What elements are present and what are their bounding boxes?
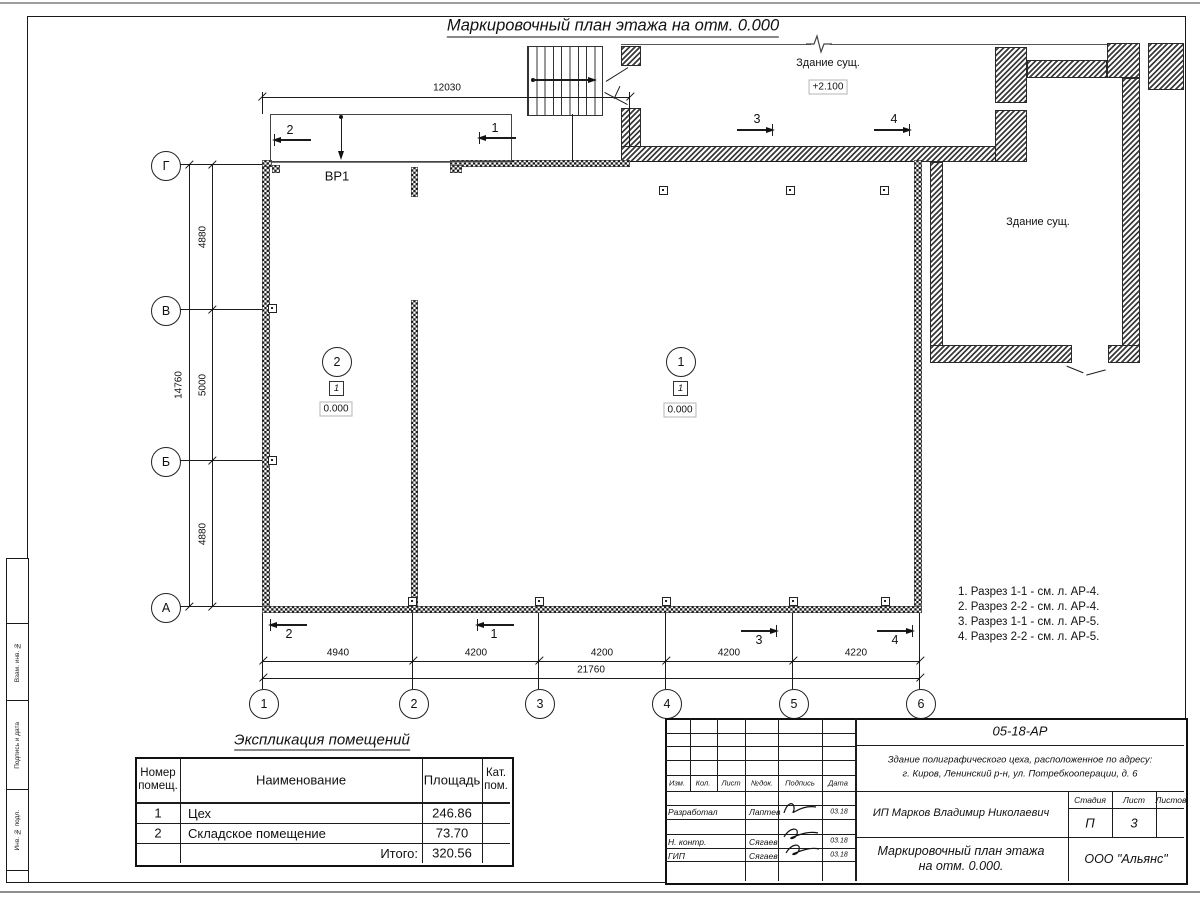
col-header-cat: Кат. пом. [483, 767, 510, 793]
explication-title: Экспликация помещений [234, 732, 410, 751]
wall-bottom [262, 606, 922, 613]
role-gip: ГИП [668, 851, 685, 861]
column-mark [268, 304, 277, 313]
column-mark [786, 186, 795, 195]
role-developer: Разработал [668, 807, 718, 817]
tb-grid [690, 718, 691, 791]
tb-grid [745, 718, 746, 881]
dim-value: 4220 [845, 648, 867, 659]
axis-badge: 2 [399, 689, 429, 719]
axis-label: 4 [664, 697, 671, 711]
note-line: 3. Разрез 1-1 - см. л. АР-5. [958, 616, 1099, 628]
section-mark-number: 4 [892, 633, 899, 647]
name-normcontrol: Сягаев [749, 837, 778, 847]
section-mark-bar [772, 124, 773, 136]
margin-stamp-label: Подпись и дата [14, 722, 21, 769]
partition-wall [411, 300, 418, 613]
tb-grid [665, 760, 855, 761]
tb-grid [665, 848, 855, 849]
axis-badge: 1 [249, 689, 279, 719]
axis-label: 5 [791, 697, 798, 711]
axis-label: 1 [261, 697, 268, 711]
dim-value: 4200 [465, 648, 487, 659]
date-normcontrol: 03.18 [830, 838, 848, 845]
margin-stamp-inv: Инв. № подл. [6, 789, 29, 872]
tb-grid [665, 733, 855, 734]
axis-label: Б [162, 455, 170, 469]
axis-line [179, 606, 262, 607]
room-type: 1 [678, 383, 683, 394]
tb-grid [1112, 791, 1113, 837]
existing-wall [621, 46, 641, 66]
tb-col-data: Дата [828, 779, 848, 788]
sheet-label: Лист [1123, 795, 1145, 805]
elevation-mark: 0.000 [319, 402, 352, 417]
room-number: 2 [334, 355, 341, 369]
client-name: ИП Марков Владимир Николаевич [873, 807, 1049, 819]
margin-stamp-empty2 [6, 870, 29, 883]
axis-label: Г [163, 159, 170, 173]
table-grid [135, 802, 510, 804]
axis-badge: 3 [525, 689, 555, 719]
tb-grid [665, 861, 855, 862]
tb-col-izm: Изм. [669, 779, 685, 788]
signature-developer [781, 800, 819, 816]
project-address-line2: г. Киров, Ленинский р-н, ул. Потребкоопе… [903, 769, 1138, 780]
tb-grid [1068, 791, 1069, 881]
drawing-title-line1: Маркировочный план этажа [878, 844, 1045, 858]
axis-line [179, 164, 262, 165]
existing-outline [830, 44, 1140, 45]
gate-jamb [450, 165, 462, 173]
axis-label: 2 [411, 697, 418, 711]
column-mark [881, 597, 890, 606]
wall-left [262, 160, 270, 613]
table-grid [180, 757, 181, 863]
tb-grid [1068, 808, 1184, 809]
axis-line [179, 460, 262, 461]
section-mark-number: 1 [492, 121, 499, 135]
dimension-line [263, 661, 920, 662]
tb-col-list: Лист [721, 779, 740, 788]
axis-badge: Г [151, 151, 181, 181]
section-mark-arrow [770, 628, 779, 634]
column-mark [659, 186, 668, 195]
section-mark-line [874, 129, 904, 130]
tb-grid [856, 745, 1184, 746]
dim-value: 4880 [198, 226, 209, 248]
sheet-edge-top [0, 2, 1200, 4]
drawing-title-line2: на отм. 0.000. [919, 859, 1004, 873]
axis-badge: 4 [652, 689, 682, 719]
table-grid [135, 843, 510, 844]
page-title: Маркировочный план этажа на отм. 0.000 [447, 17, 779, 38]
sheet-value: 3 [1130, 816, 1137, 831]
dimension-line [212, 165, 213, 607]
tb-grid [822, 718, 823, 881]
elevation-mark: +2.100 [809, 80, 848, 95]
drawing-sheet: { "sheet": { "title": "Маркировочный пла… [0, 0, 1200, 900]
stair-arrowhead [588, 77, 597, 83]
tb-grid [778, 718, 779, 881]
dim-value: 4200 [718, 648, 740, 659]
date-developer: 03.18 [830, 809, 848, 816]
dimension-line [189, 165, 190, 607]
table-grid [135, 823, 510, 824]
existing-wall [1027, 60, 1107, 78]
existing-wall [1108, 345, 1140, 363]
table-cell: 246.86 [432, 806, 472, 821]
table-cell: Складское помещение [188, 826, 326, 841]
margin-stamp-empty [6, 558, 29, 625]
section-mark-line [741, 630, 771, 631]
section-mark-number: 2 [287, 123, 294, 137]
name-developer: Лаптев [749, 807, 780, 817]
room-number-badge: 2 [322, 347, 352, 377]
axis-label: 6 [918, 697, 925, 711]
axis-label: А [162, 601, 170, 615]
table-total-value: 320.56 [432, 846, 472, 861]
existing-wall [1107, 43, 1140, 78]
column-mark [535, 597, 544, 606]
gate-jamb [272, 165, 280, 173]
note-line: 4. Разрез 2-2 - см. л. АР-5. [958, 631, 1099, 643]
section-mark-arrow [766, 127, 775, 133]
wall-tie-line [630, 161, 921, 163]
axis-badge: А [151, 593, 181, 623]
canopy-arrow [341, 118, 342, 152]
axis-label: 3 [537, 697, 544, 711]
stair-arrow [533, 79, 590, 80]
section-mark-bar [270, 619, 271, 631]
sheet-edge-bottom [0, 891, 1200, 893]
section-mark-arrow [906, 628, 915, 634]
tb-grid [665, 746, 855, 747]
dim-total: 21760 [577, 665, 605, 676]
tb-grid [665, 791, 855, 792]
existing-building-label: Здание сущ. [1006, 216, 1070, 228]
col-header-area: Площадь [424, 773, 481, 788]
tb-col-kol: Кол. [696, 779, 711, 788]
margin-stamp-label: Взам. инв. № [14, 642, 21, 682]
dim-value: 5000 [198, 374, 209, 396]
date-gip: 03.18 [830, 852, 848, 859]
column-mark [880, 186, 889, 195]
tb-grid [665, 834, 855, 835]
section-mark-line [281, 139, 311, 140]
existing-building-label: Здание сущ. [796, 57, 860, 69]
partition-stub [411, 167, 418, 197]
room-type: 1 [334, 383, 339, 394]
tb-grid [665, 819, 855, 820]
section-mark-line [484, 624, 514, 625]
sheets-label: Листов [1156, 795, 1187, 805]
stair-edge-line [572, 114, 573, 161]
dim-value: 4200 [591, 648, 613, 659]
company-name: ООО "Альянс" [1084, 852, 1167, 866]
existing-wall [1122, 78, 1140, 363]
section-mark-number: 3 [756, 633, 763, 647]
margin-stamp-label: Инв. № подл. [14, 810, 21, 851]
section-mark-bar [477, 619, 478, 631]
column-mark [268, 456, 277, 465]
tb-grid [665, 775, 855, 776]
section-mark-bar [274, 134, 275, 146]
section-mark-line [737, 129, 767, 130]
section-mark-number: 1 [491, 627, 498, 641]
axis-badge: Б [151, 447, 181, 477]
section-mark-line [486, 137, 516, 138]
column-mark [408, 597, 417, 606]
stage-label: Стадия [1074, 795, 1106, 805]
canopy-outline [270, 114, 512, 162]
room-number: 1 [678, 355, 685, 369]
existing-outline [621, 44, 812, 45]
column-mark [789, 597, 798, 606]
dim-value: 12030 [433, 83, 461, 94]
extension-line [629, 92, 630, 146]
tb-col-ndok: №док. [751, 779, 773, 788]
axis-label: В [162, 304, 170, 318]
stage-value: П [1085, 816, 1094, 831]
col-header-number: Номер помещ. [136, 767, 180, 793]
section-mark-number: 3 [754, 112, 761, 126]
wall-right [914, 160, 922, 613]
note-line: 1. Разрез 1-1 - см. л. АР-4. [958, 586, 1099, 598]
tb-grid [856, 791, 1184, 792]
dim-total: 14760 [174, 371, 185, 399]
canopy-arrowhead [338, 151, 344, 160]
existing-wall [1148, 43, 1184, 90]
axis-badge: 5 [779, 689, 809, 719]
existing-wall [930, 345, 1072, 363]
margin-stamp-podpis: Подпись и дата [6, 700, 29, 791]
axis-badge: В [151, 296, 181, 326]
table-cell: 2 [154, 826, 161, 841]
section-mark-bar [479, 132, 480, 144]
break-symbol-icon [806, 34, 832, 54]
tb-col-podpis: Подпись [785, 779, 815, 788]
section-mark-number: 2 [286, 627, 293, 641]
section-mark-bar [912, 625, 913, 637]
section-mark-number: 4 [891, 112, 898, 126]
project-address-line1: Здание полиграфического цеха, расположен… [888, 755, 1153, 766]
name-gip: Сягаев [749, 851, 778, 861]
axis-badge: 6 [906, 689, 936, 719]
existing-wall [995, 110, 1027, 162]
section-mark-arrow [903, 127, 912, 133]
margin-stamp-vzam: Взам. инв. № [6, 623, 29, 702]
section-mark-line [877, 630, 907, 631]
dimension-line [263, 678, 920, 679]
table-total-label: Итого: [340, 846, 418, 861]
dim-value: 4880 [198, 523, 209, 545]
gate-label: ВР1 [325, 169, 350, 184]
section-mark-bar [776, 625, 777, 637]
existing-wall [995, 47, 1027, 103]
table-cell: Цех [188, 806, 211, 821]
tb-grid [855, 718, 857, 881]
column-mark [662, 597, 671, 606]
note-line: 2. Разрез 2-2 - см. л. АР-4. [958, 601, 1099, 613]
dimension-line [262, 97, 630, 98]
section-mark-line [277, 624, 307, 625]
axis-line [179, 309, 262, 310]
room-type-mark: 1 [329, 381, 344, 396]
section-mark-bar [909, 124, 910, 136]
existing-wall [930, 162, 943, 363]
room-number-badge: 1 [666, 347, 696, 377]
col-header-name: Наименование [256, 773, 346, 788]
role-normcontrol: Н. контр. [668, 837, 706, 847]
signature-normcontrol-gip [780, 826, 822, 858]
table-cell: 1 [154, 806, 161, 821]
tb-grid [665, 805, 855, 806]
elevation-mark: 0.000 [663, 403, 696, 418]
table-cell: 73.70 [436, 826, 469, 841]
dim-value: 4940 [327, 648, 349, 659]
tb-grid [717, 718, 718, 791]
doc-code: 05-18-АР [993, 724, 1048, 739]
tb-grid [856, 837, 1184, 838]
room-type-mark: 1 [673, 381, 688, 396]
